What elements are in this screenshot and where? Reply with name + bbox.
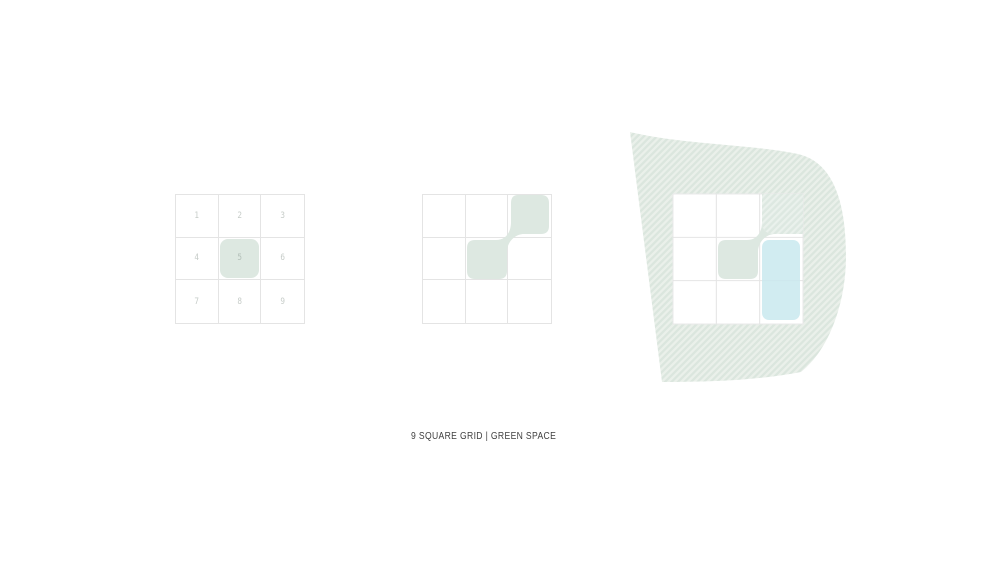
cell-number: 6 (280, 253, 285, 263)
figure-caption: 9 SQUARE GRID | GREEN SPACE (411, 431, 556, 442)
grid-cell-4: 4 (176, 238, 219, 281)
grid-cell-3: 3 (261, 195, 304, 238)
grid-cell-1: 1 (176, 195, 219, 238)
grid-cell-2: 2 (219, 195, 262, 238)
grid-cell-7: 7 (176, 280, 219, 323)
cell-number: 7 (195, 297, 200, 307)
cell-number: 2 (237, 211, 242, 221)
cell-number: 5 (237, 253, 242, 263)
green-connection-grid-figure (422, 194, 552, 324)
cell-number: 9 (280, 297, 285, 307)
grid-cell (423, 195, 466, 238)
site-plan-figure (615, 118, 870, 398)
cell-number: 1 (195, 211, 200, 221)
grid-cell-5: 5 (219, 238, 262, 281)
grid-cell (466, 280, 509, 323)
grid-cell (508, 195, 551, 238)
grid-cell (423, 280, 466, 323)
grid-cell (423, 238, 466, 281)
cell-number: 3 (280, 211, 285, 221)
grid-cell (466, 238, 509, 281)
grid-cell-9: 9 (261, 280, 304, 323)
hatched-green-cell-texture (762, 194, 803, 234)
water-element (762, 240, 800, 320)
highlighted-green-cell: 5 (220, 239, 259, 278)
grid-cell (466, 195, 509, 238)
diagram-canvas: 1 2 3 4 5 6 7 8 9 (0, 0, 1000, 563)
grid-cell (508, 280, 551, 323)
grid-cell (508, 238, 551, 281)
grid-cell-6: 6 (261, 238, 304, 281)
cell-number: 8 (237, 297, 242, 307)
numbered-grid-figure: 1 2 3 4 5 6 7 8 9 (175, 194, 305, 324)
grid-cell-8: 8 (219, 280, 262, 323)
cell-number: 4 (195, 253, 200, 263)
